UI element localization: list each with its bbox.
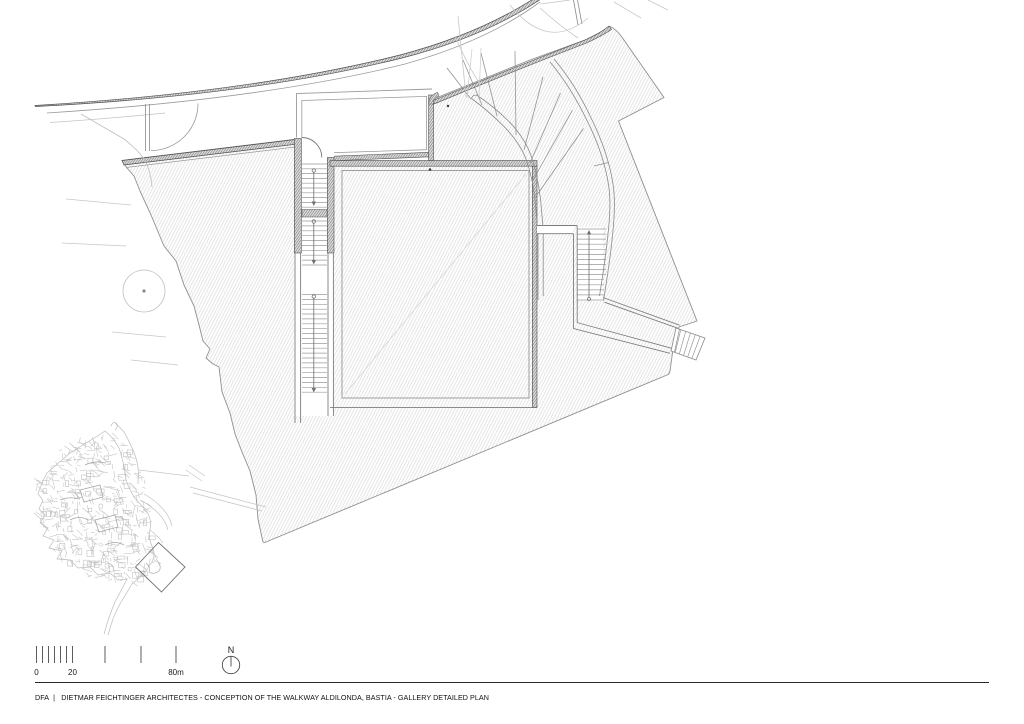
svg-text:DFA | DIETMAR FEICHTINGER A: DFA | DIETMAR FEICHTINGER ARCHITECTES - … bbox=[35, 693, 489, 702]
svg-text:N: N bbox=[228, 645, 235, 655]
svg-text:80m: 80m bbox=[168, 668, 184, 677]
svg-text:20: 20 bbox=[68, 668, 77, 677]
svg-text:0: 0 bbox=[34, 668, 39, 677]
